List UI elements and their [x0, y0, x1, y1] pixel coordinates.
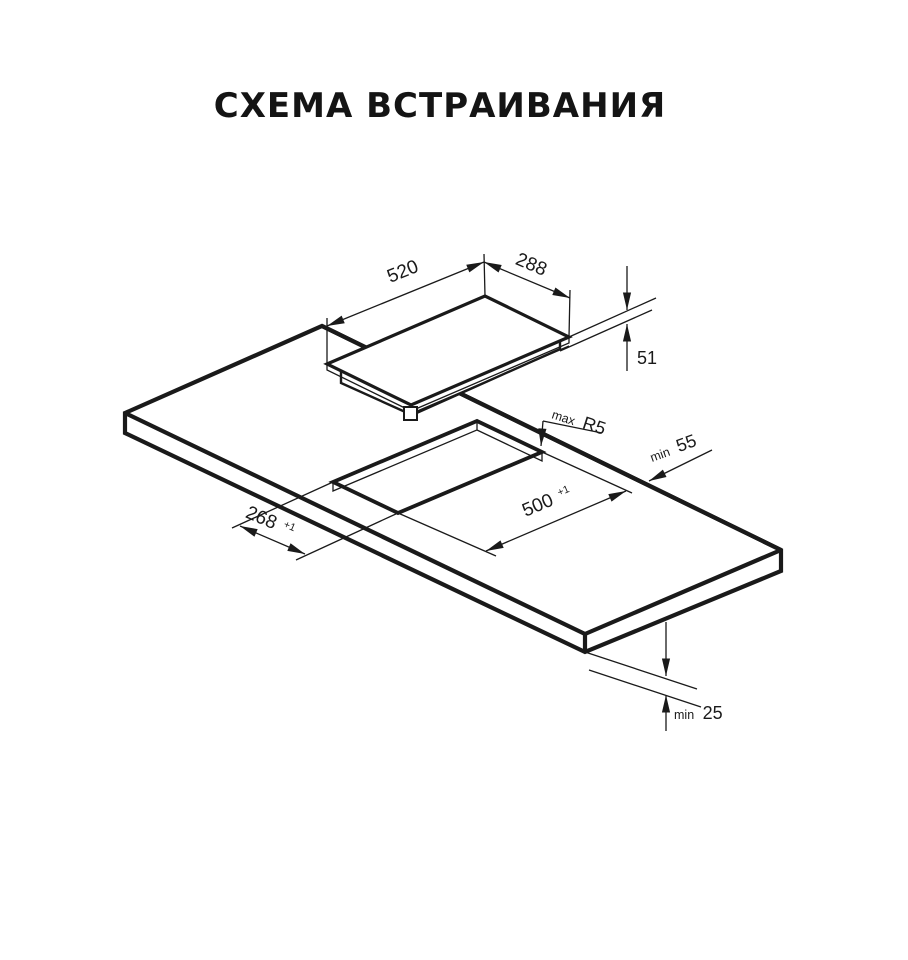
cooktop-foot — [404, 407, 417, 420]
dim-cooktop-width-label: 520 — [384, 256, 421, 287]
installation-diagram: СХЕМА ВСТРАИВАНИЯ 520 — [0, 0, 908, 960]
dim-cooktop-height-label: 51 — [637, 348, 657, 368]
installation-scheme-page: СХЕМА ВСТРАИВАНИЯ 520 — [0, 0, 908, 960]
dim-bottom-clearance-label: min 25 — [674, 703, 723, 723]
diagram-title: СХЕМА ВСТРАИВАНИЯ — [214, 86, 666, 126]
dim-side-clearance: min 55 — [647, 430, 712, 481]
dim-cooktop-height: 51 — [560, 266, 657, 371]
dim-corner-radius-label: max R5 — [550, 403, 609, 439]
